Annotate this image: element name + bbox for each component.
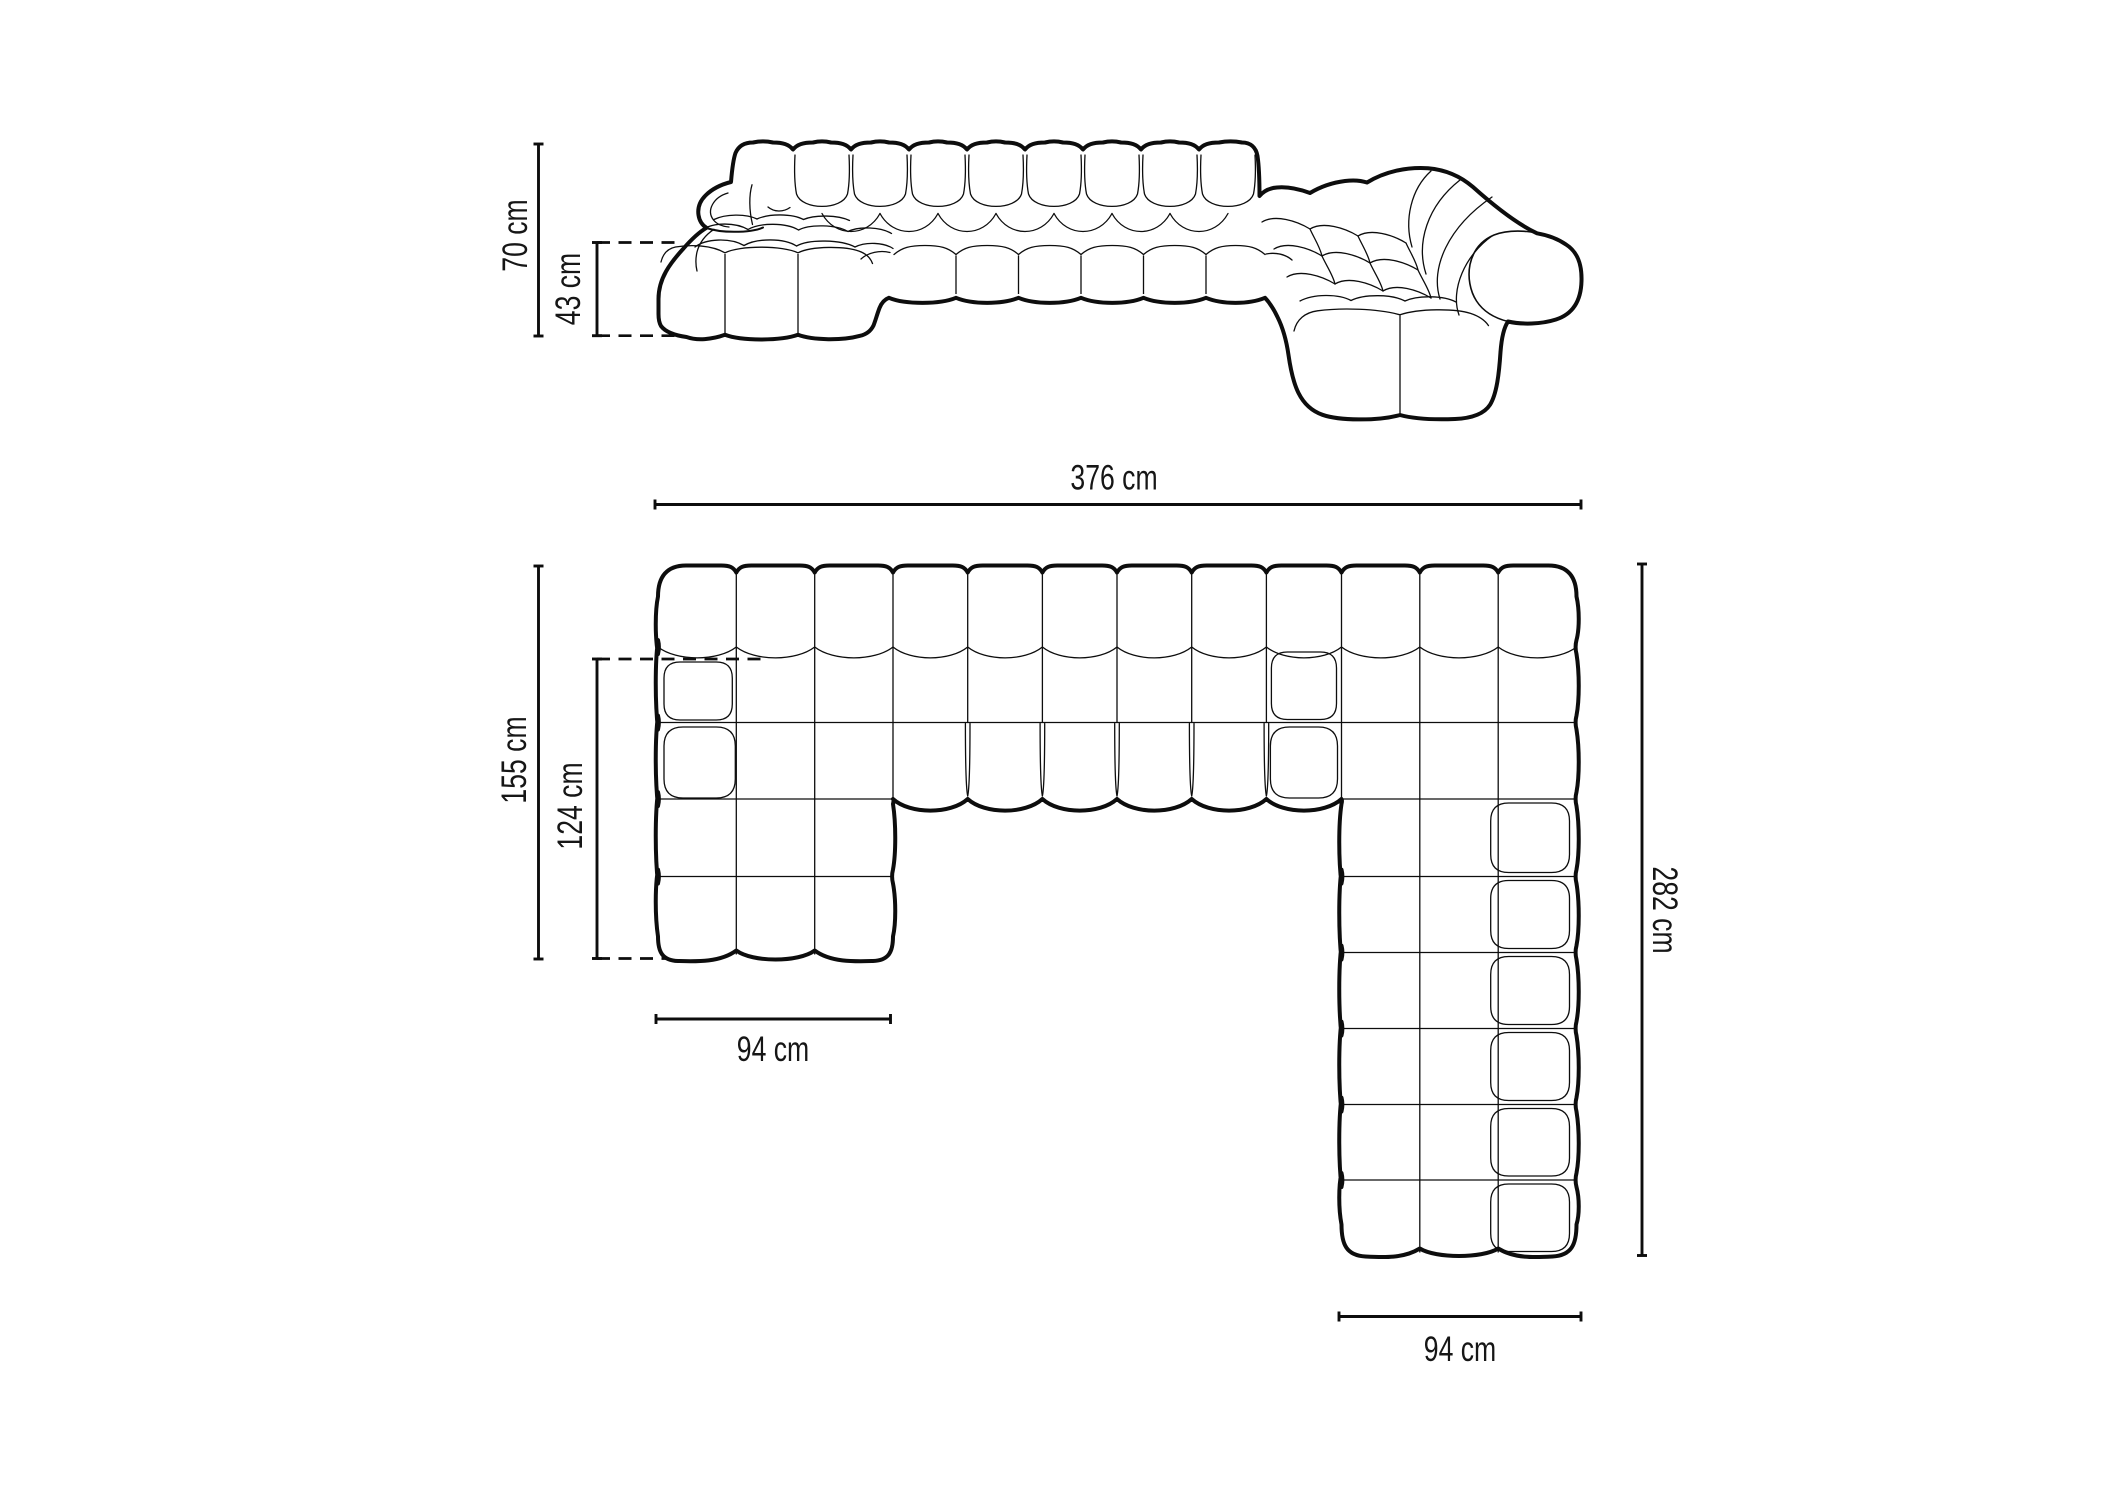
svg-text:70 cm: 70 cm xyxy=(495,199,534,271)
svg-text:155 cm: 155 cm xyxy=(494,716,533,803)
svg-text:124 cm: 124 cm xyxy=(550,762,589,849)
svg-text:94 cm: 94 cm xyxy=(737,1029,809,1068)
svg-text:94 cm: 94 cm xyxy=(1424,1329,1496,1368)
svg-text:376 cm: 376 cm xyxy=(1070,458,1157,497)
svg-text:43 cm: 43 cm xyxy=(548,253,587,325)
svg-text:282 cm: 282 cm xyxy=(1645,866,1684,953)
